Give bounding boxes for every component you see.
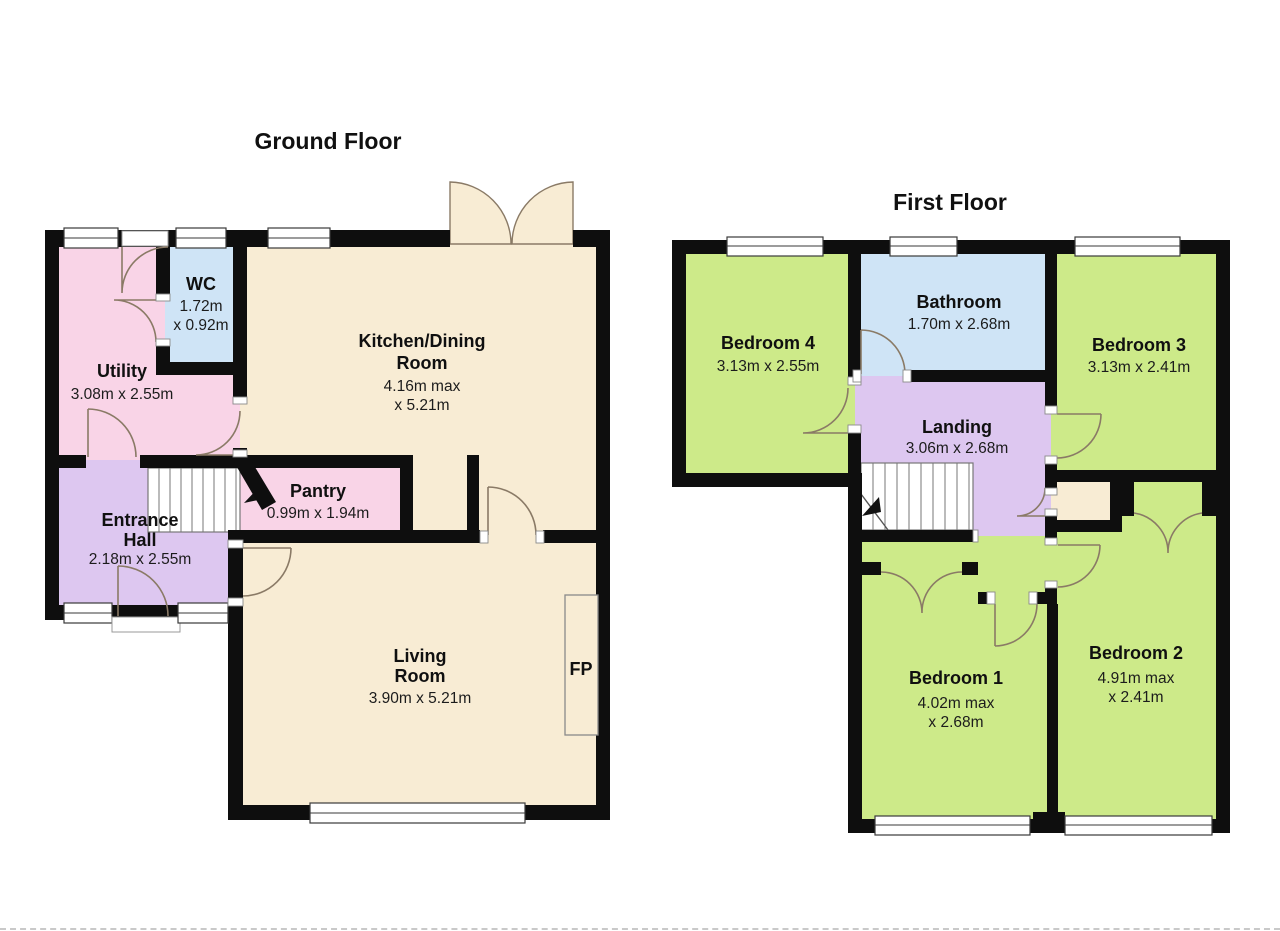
bathroom-label: Bathroom [917,292,1002,312]
pantry-dims: 0.99m x 1.94m [267,505,370,522]
ground-floor-plan: Ground Floor [45,128,610,823]
landing-label: Landing [922,417,992,437]
front-door-threshold [112,617,180,632]
bedroom2-label: Bedroom 2 [1089,643,1183,663]
kitchen-label-2: Room [397,353,448,373]
first-floor-plan: First Floor [672,189,1230,835]
bedroom1-wardrobe-stub-right [962,562,978,575]
bedroom2-dim1: 4.91m max [1098,670,1175,687]
kitchen-label-1: Kitchen/Dining [359,331,486,351]
wc-dim1: 1.72m [179,298,222,315]
hall-dims: 2.18m x 2.55m [89,551,192,568]
utility-label: Utility [97,361,147,381]
bedroom4-dims: 3.13m x 2.55m [717,358,820,375]
landing-dims: 3.06m x 2.68m [906,440,1009,457]
floorplan-canvas: Ground Floor [0,0,1280,931]
bedroom2-dim2: x 2.41m [1108,689,1163,706]
first-floor-stairs [861,463,973,530]
wc-dim2: x 0.92m [173,317,228,334]
fireplace-label: FP [569,659,592,679]
bedroom2-wardrobe-stub-right [1202,482,1216,516]
first-floor-title: First Floor [893,189,1007,215]
page-bottom-edge [0,928,1280,930]
bedroom1-wardrobe-stub-left [855,562,881,575]
bedroom2-wardrobe-stub-left [1120,482,1134,516]
pantry-label: Pantry [290,481,346,501]
hall-label-2: Hall [123,530,156,550]
ground-floor-title: Ground Floor [255,128,402,154]
living-label-1: Living [394,646,447,666]
kitchen-dim1: 4.16m max [384,378,461,395]
bedroom1-dim2: x 2.68m [928,714,983,731]
bedroom4-label: Bedroom 4 [721,333,815,353]
living-label-2: Room [395,666,446,686]
floorplan-page: Ground Floor [0,0,1280,931]
bedroom3-label: Bedroom 3 [1092,335,1186,355]
utility-door-threshold [122,231,168,246]
bathroom-dims: 1.70m x 2.68m [908,316,1011,333]
bedroom1-label: Bedroom 1 [909,668,1003,688]
bedroom1-dim1: 4.02m max [918,695,995,712]
bedroom3-dims: 3.13m x 2.41m [1088,359,1191,376]
utility-dims: 3.08m x 2.55m [71,386,174,403]
french-door-right-leaf [512,182,573,244]
hall-label-1: Entrance [101,510,178,530]
living-dims: 3.90m x 5.21m [369,690,472,707]
cupboard-fill [1051,476,1116,526]
french-door-left-leaf [450,182,511,244]
wc-label: WC [186,274,216,294]
kitchen-dim2: x 5.21m [394,397,449,414]
